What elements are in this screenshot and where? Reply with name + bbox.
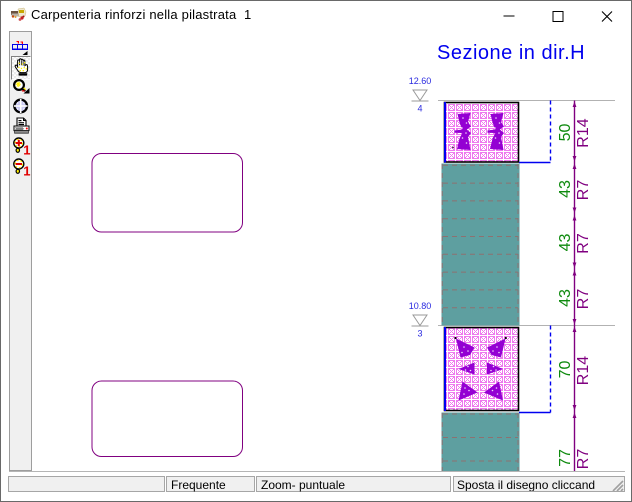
svg-text:Sezione in dir.H: Sezione in dir.H: [437, 42, 585, 64]
svg-text:R14: R14: [575, 356, 592, 385]
svg-text:12.60: 12.60: [409, 76, 432, 86]
svg-text:43: 43: [557, 234, 574, 252]
svg-text:43: 43: [557, 289, 574, 307]
svg-text:77: 77: [557, 449, 574, 467]
svg-text:43: 43: [557, 180, 574, 198]
svg-text:R7: R7: [575, 289, 592, 310]
svg-text:10.80: 10.80: [409, 301, 432, 311]
svg-text:R7: R7: [575, 233, 592, 254]
svg-text:R7: R7: [575, 180, 592, 201]
svg-text:4: 4: [417, 104, 422, 114]
svg-text:70: 70: [557, 361, 574, 379]
svg-text:3: 3: [417, 329, 422, 339]
svg-text:R14: R14: [575, 118, 592, 147]
svg-text:R7: R7: [575, 449, 592, 470]
svg-text:50: 50: [557, 124, 574, 142]
